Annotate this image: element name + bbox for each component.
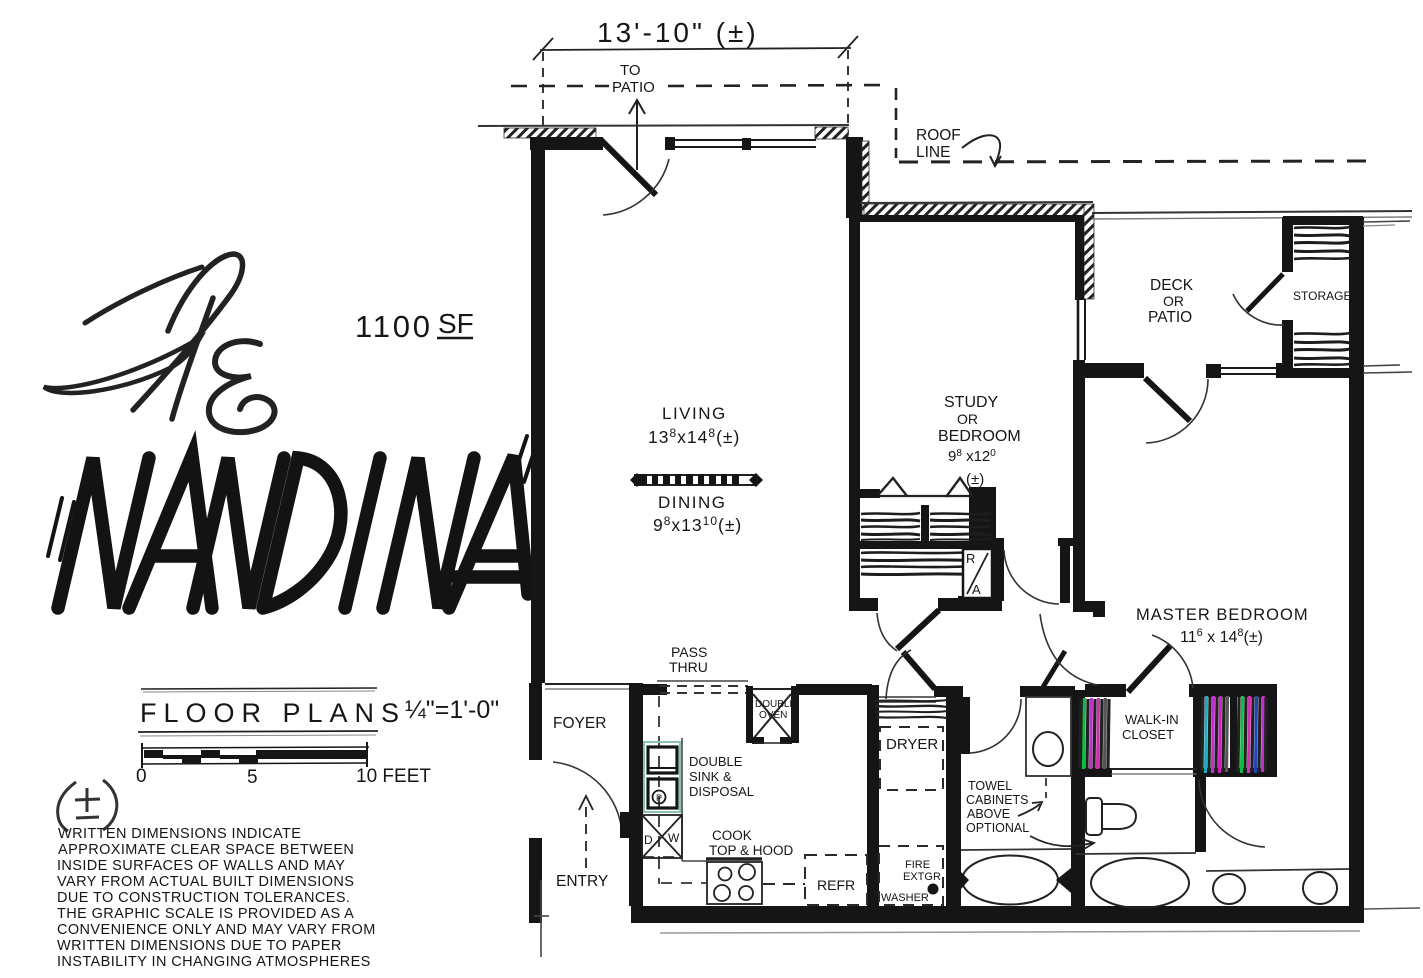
- svg-text:D: D: [644, 833, 653, 847]
- svg-text:R: R: [966, 551, 975, 566]
- svg-text:ABOVE: ABOVE: [967, 807, 1010, 821]
- svg-text:STUDY: STUDY: [944, 394, 999, 411]
- svg-text:W: W: [668, 831, 680, 845]
- svg-text:FIRE: FIRE: [905, 859, 930, 871]
- svg-text:FLOOR PLANS: FLOOR PLANS: [140, 698, 406, 728]
- svg-text:CLOSET: CLOSET: [1122, 727, 1174, 742]
- svg-text:VARY FROM ACTUAL BUILT DIMENSI: VARY FROM ACTUAL BUILT DIMENSIONS: [57, 874, 354, 890]
- svg-text:DINING: DINING: [658, 493, 727, 512]
- svg-text:SINK &: SINK &: [689, 769, 732, 784]
- svg-text:P: P: [656, 793, 662, 803]
- svg-text:PATIO: PATIO: [612, 79, 655, 96]
- svg-text:APPROXIMATE CLEAR SPACE BETWEE: APPROXIMATE CLEAR SPACE BETWEEN: [58, 842, 354, 858]
- svg-text:CABINETS: CABINETS: [966, 793, 1029, 807]
- svg-text:THRU: THRU: [669, 659, 708, 675]
- svg-text:STORAGE: STORAGE: [1293, 289, 1351, 303]
- svg-text:EXTGR: EXTGR: [903, 871, 941, 883]
- svg-text:LIVING: LIVING: [662, 404, 727, 423]
- svg-text:THE GRAPHIC SCALE IS PROVIDED: THE GRAPHIC SCALE IS PROVIDED AS A: [57, 906, 354, 922]
- svg-text:BEDROOM: BEDROOM: [938, 428, 1021, 445]
- svg-text:A: A: [972, 582, 981, 597]
- svg-text:WRITTEN DIMENSIONS INDICATE: WRITTEN DIMENSIONS INDICATE: [58, 826, 301, 842]
- svg-text:DRYER: DRYER: [886, 736, 938, 753]
- svg-text:ROOF: ROOF: [916, 127, 961, 144]
- svg-text:INSIDE SURFACES OF WALLS AND M: INSIDE SURFACES OF WALLS AND MAY: [57, 858, 345, 874]
- svg-text:WASHER: WASHER: [881, 892, 929, 904]
- svg-text:CONVENIENCE ONLY AND MAY VARY: CONVENIENCE ONLY AND MAY VARY FROM: [57, 922, 376, 938]
- svg-text:TO: TO: [620, 62, 641, 79]
- svg-text:COOK: COOK: [712, 828, 752, 843]
- svg-text:¼"=1'-0": ¼"=1'-0": [405, 696, 499, 724]
- svg-text:LINE: LINE: [916, 144, 950, 161]
- svg-text:PASS: PASS: [671, 644, 707, 660]
- svg-text:DECK: DECK: [1150, 277, 1194, 294]
- svg-text:0: 0: [136, 766, 147, 787]
- svg-text:SF: SF: [438, 308, 474, 339]
- svg-text:116 x 148(±): 116 x 148(±): [1180, 627, 1263, 646]
- svg-text:OR: OR: [1163, 293, 1184, 309]
- svg-text:PATIO: PATIO: [1148, 309, 1192, 326]
- svg-text:REFR: REFR: [817, 877, 855, 893]
- svg-text:98 x120: 98 x120: [948, 448, 996, 465]
- svg-text:INSTABILITY IN CHANGING ATMOSP: INSTABILITY IN CHANGING ATMOSPHERES: [57, 954, 371, 970]
- svg-text:10 FEET: 10 FEET: [356, 766, 431, 787]
- svg-text:1100: 1100: [355, 309, 430, 344]
- svg-text:OPTIONAL: OPTIONAL: [966, 821, 1029, 835]
- svg-text:OVEN: OVEN: [759, 710, 787, 721]
- svg-text:138x148(±): 138x148(±): [648, 426, 740, 447]
- svg-text:DOUBLE: DOUBLE: [689, 754, 743, 769]
- svg-text:OR: OR: [957, 411, 978, 427]
- svg-text:DISPOSAL: DISPOSAL: [689, 784, 754, 799]
- svg-text:WRITTEN DIMENSIONS DUE TO PAPE: WRITTEN DIMENSIONS DUE TO PAPER: [57, 938, 342, 954]
- svg-text:ENTRY: ENTRY: [556, 873, 608, 890]
- svg-text:WALK-IN: WALK-IN: [1125, 712, 1179, 727]
- svg-text:(±): (±): [966, 471, 984, 488]
- svg-text:DUE TO CONSTRUCTION TOLERANCES: DUE TO CONSTRUCTION TOLERANCES.: [57, 890, 350, 906]
- svg-text:FOYER: FOYER: [553, 715, 606, 732]
- svg-text:5: 5: [247, 767, 258, 788]
- svg-text:MASTER BEDROOM: MASTER BEDROOM: [1136, 606, 1309, 624]
- svg-text:DOUBLE: DOUBLE: [755, 699, 796, 710]
- svg-text:TOP & HOOD: TOP & HOOD: [709, 843, 794, 858]
- svg-text:TOWEL: TOWEL: [968, 779, 1012, 793]
- svg-text:13'-10" (±): 13'-10" (±): [597, 17, 759, 48]
